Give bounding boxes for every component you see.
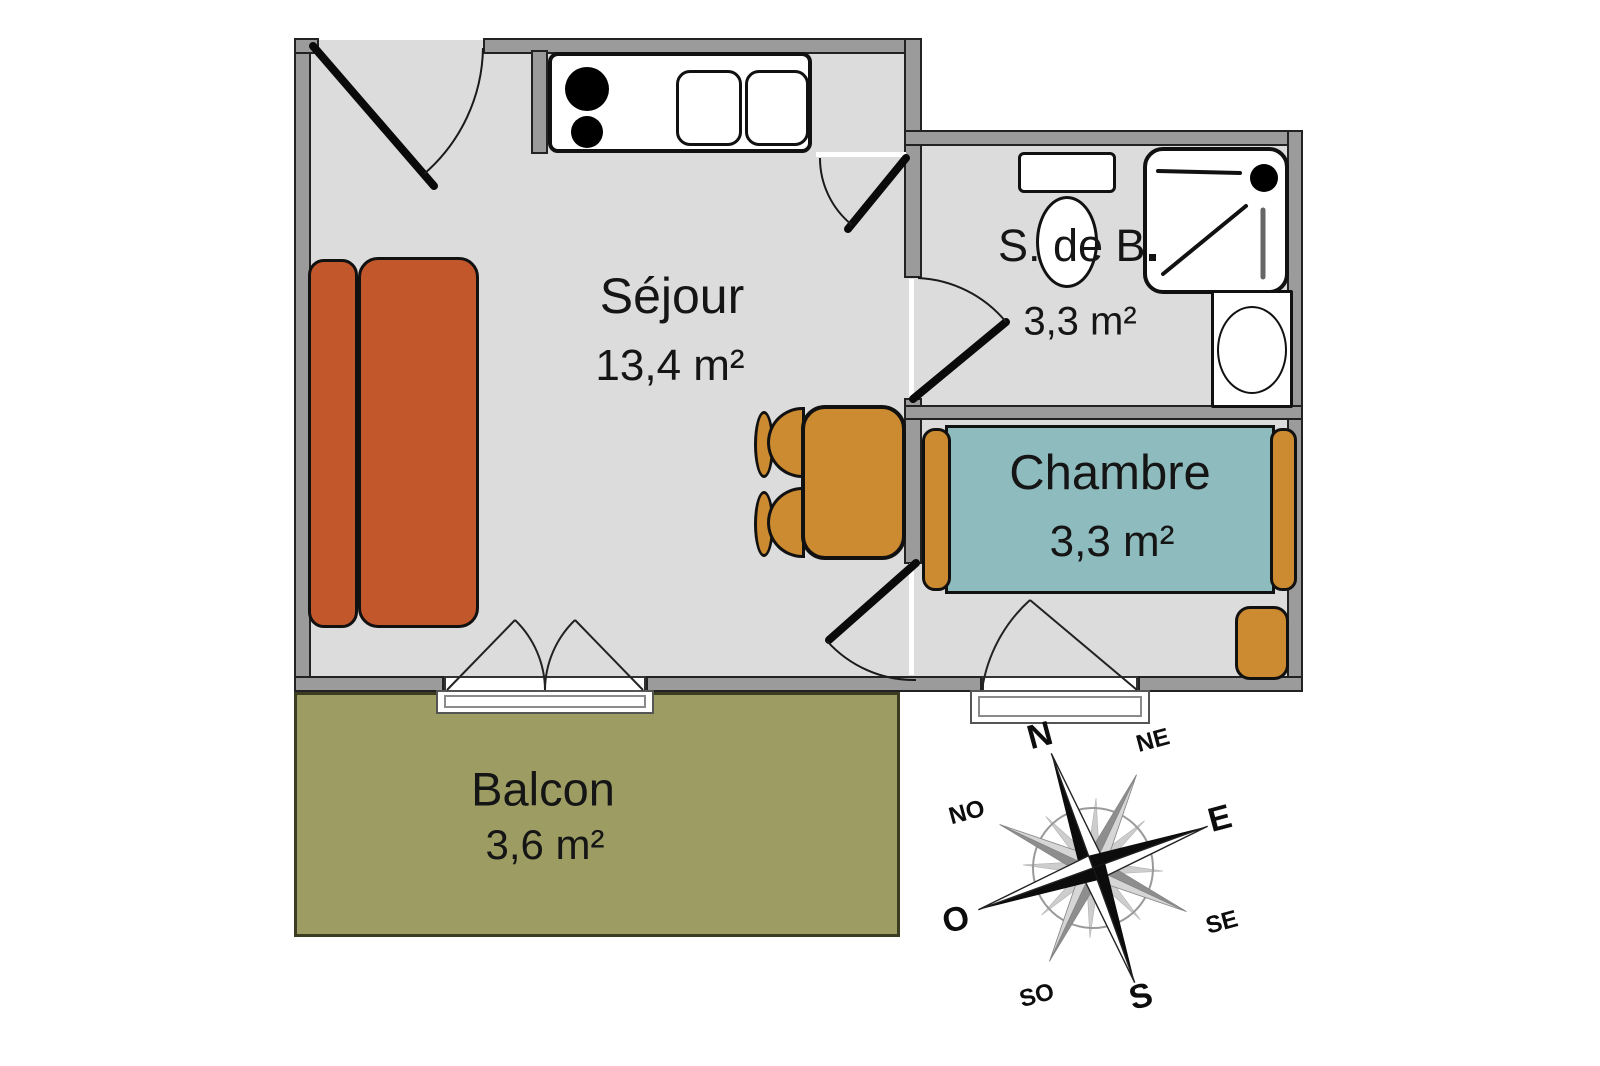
entrance-opening-floor	[315, 40, 483, 54]
bedroom-door-threshold	[909, 563, 914, 675]
sofa-seat	[358, 257, 479, 628]
wall-top-corner	[294, 38, 319, 54]
living-room-name: Séjour	[600, 267, 745, 325]
sofa-backrest	[308, 259, 358, 628]
dining-table	[801, 405, 906, 560]
wall-bottom-left	[294, 676, 444, 692]
bedroom-name: Chambre	[1009, 445, 1211, 501]
bathroom-name: S. de B.	[998, 220, 1158, 272]
living-room-area: 13,4 m²	[595, 341, 744, 391]
sink-left	[676, 70, 742, 146]
shower-tray	[1143, 147, 1289, 294]
bathroom-shelf	[1018, 152, 1116, 193]
hall-threshold	[816, 152, 906, 157]
stove-burner-small-icon	[571, 116, 603, 148]
toilet-bowl	[1217, 306, 1287, 394]
bed-pillow-right	[1270, 428, 1297, 591]
wall-middle-upper	[904, 38, 922, 278]
bedroom-area: 3,3 m²	[1050, 517, 1175, 567]
wall-middle-lower	[904, 398, 922, 564]
stove-burner-large-icon	[565, 67, 609, 111]
wall-bottom-middle	[646, 676, 982, 692]
french-window-sill-inner	[444, 695, 646, 708]
bedside-stool	[1235, 606, 1289, 680]
wall-kitchen-stub	[531, 50, 548, 154]
bathroom-area: 3,3 m²	[1023, 300, 1136, 345]
bathroom-door-threshold	[909, 279, 914, 397]
sink-right	[745, 70, 809, 146]
wall-bathroom-top	[904, 130, 1303, 146]
balcony-name: Balcon	[471, 762, 615, 817]
bed-pillow-left	[922, 428, 951, 591]
balcony-area: 3,6 m²	[485, 821, 604, 869]
compass-rose-icon	[943, 698, 1243, 1038]
floor-plan: N NE E SE S SO O NO Séjour 13,4 m² S. de…	[0, 0, 1600, 1066]
